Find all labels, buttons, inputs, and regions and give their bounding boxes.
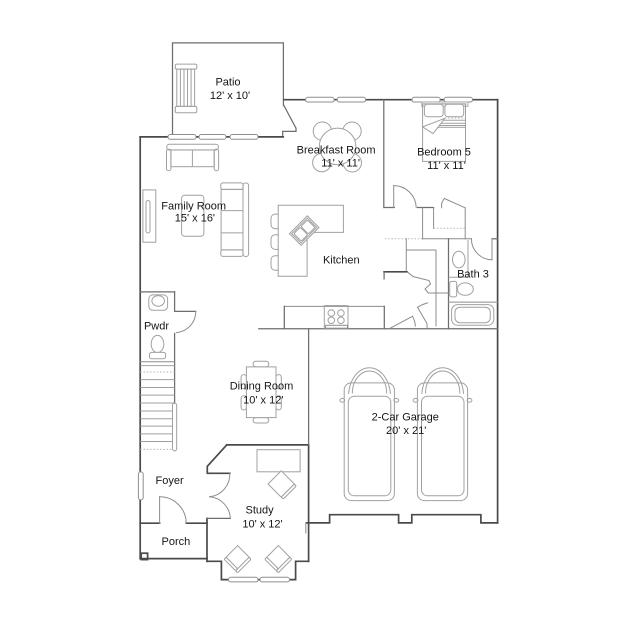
svg-text:20' x 21': 20' x 21' bbox=[386, 425, 426, 437]
svg-text:2-Car Garage: 2-Car Garage bbox=[372, 411, 439, 423]
svg-text:10' x 12': 10' x 12' bbox=[243, 394, 283, 406]
svg-text:Patio: Patio bbox=[215, 77, 240, 89]
svg-text:Bath 3: Bath 3 bbox=[457, 269, 489, 281]
svg-text:Dining Room: Dining Room bbox=[230, 381, 294, 393]
svg-text:Kitchen: Kitchen bbox=[323, 255, 360, 267]
svg-text:11' x 11': 11' x 11' bbox=[321, 158, 360, 170]
svg-text:Pwdr: Pwdr bbox=[144, 321, 169, 333]
svg-text:Bedroom 5: Bedroom 5 bbox=[417, 147, 471, 159]
svg-text:15' x 16': 15' x 16' bbox=[175, 213, 215, 225]
svg-text:12' x 10': 12' x 10' bbox=[210, 90, 250, 102]
svg-text:Porch: Porch bbox=[162, 536, 191, 548]
svg-text:Breakfast Room: Breakfast Room bbox=[297, 144, 376, 156]
svg-text:11' x 11': 11' x 11' bbox=[427, 160, 466, 172]
svg-text:10' x 12': 10' x 12' bbox=[242, 519, 282, 531]
svg-text:Foyer: Foyer bbox=[156, 475, 184, 487]
svg-text:Study: Study bbox=[246, 504, 275, 516]
svg-text:Family Room: Family Room bbox=[161, 200, 226, 212]
